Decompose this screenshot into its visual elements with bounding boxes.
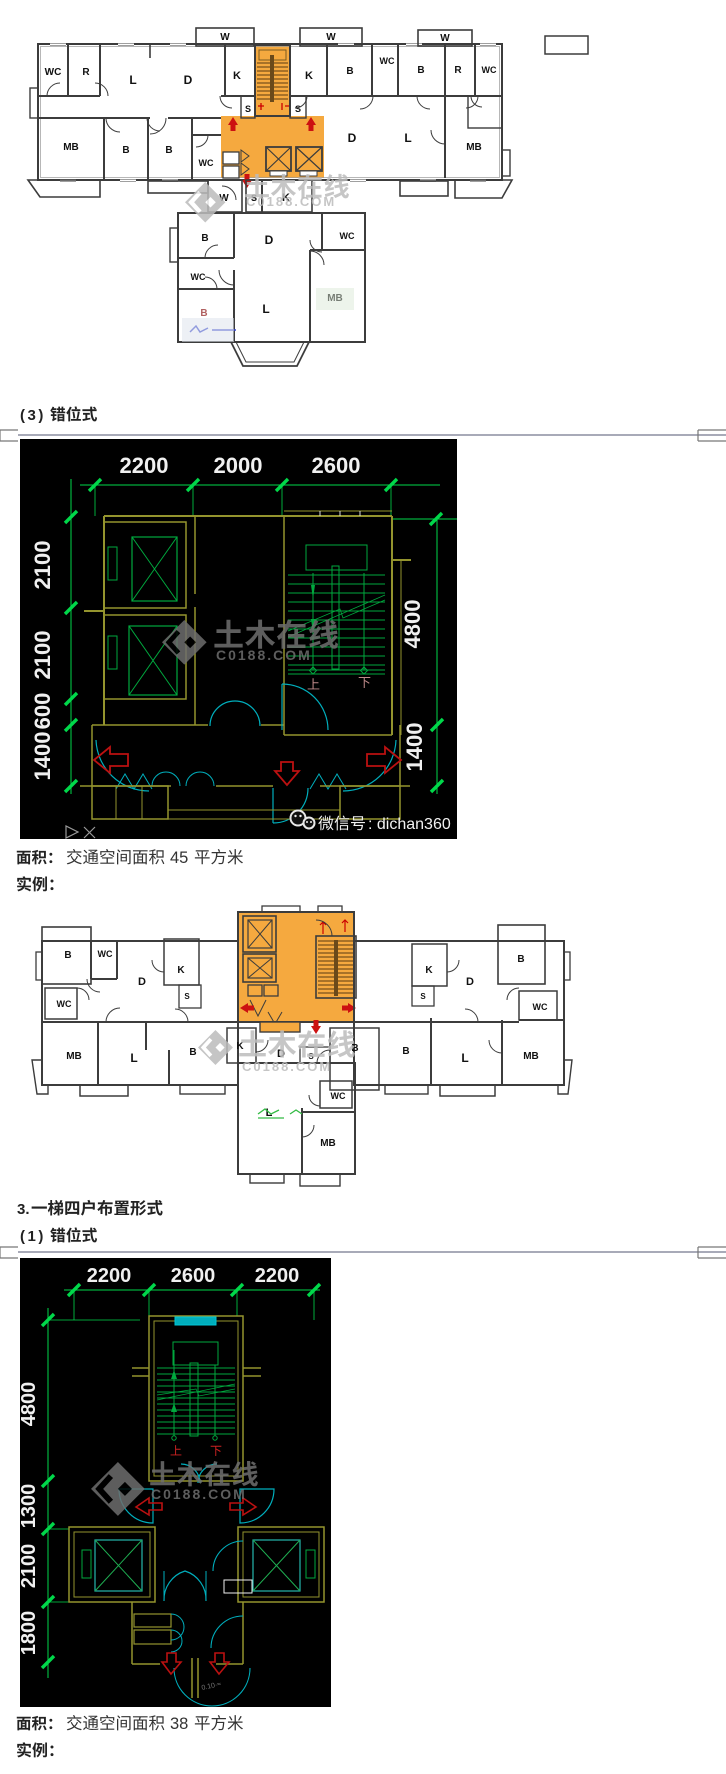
- svg-text:WC: WC: [45, 67, 62, 78]
- svg-text:B: B: [200, 308, 207, 319]
- svg-text:L: L: [129, 73, 136, 87]
- svg-text:2600: 2600: [171, 1265, 216, 1287]
- svg-text:WC: WC: [57, 999, 72, 1009]
- svg-text:2600: 2600: [312, 453, 361, 478]
- svg-text:W: W: [326, 32, 336, 43]
- svg-text:4800: 4800: [18, 1382, 40, 1427]
- svg-text:: dichan360: : dichan360: [368, 816, 451, 833]
- svg-text:WC: WC: [482, 65, 497, 75]
- svg-text:C0188.COM: C0188.COM: [216, 647, 312, 663]
- svg-text:WC: WC: [533, 1002, 548, 1012]
- svg-text:MB: MB: [66, 1051, 82, 1062]
- svg-text:B: B: [189, 1047, 196, 1058]
- svg-text:S: S: [245, 104, 251, 114]
- svg-text:L: L: [404, 131, 411, 145]
- svg-text:S: S: [295, 104, 301, 114]
- svg-text:B: B: [346, 66, 353, 77]
- svg-text:2100: 2100: [30, 541, 55, 590]
- svg-text:WC: WC: [331, 1091, 346, 1101]
- svg-text:WC: WC: [199, 158, 214, 168]
- svg-text:MB: MB: [320, 1138, 336, 1149]
- svg-text:2200: 2200: [255, 1265, 300, 1287]
- svg-text:(3): (3): [20, 407, 46, 424]
- svg-text:K: K: [233, 70, 241, 82]
- svg-text:L: L: [130, 1051, 137, 1065]
- svg-text:1800: 1800: [18, 1611, 40, 1656]
- svg-text:D: D: [348, 131, 357, 145]
- svg-text:600: 600: [30, 693, 55, 730]
- svg-text:R: R: [82, 67, 90, 78]
- svg-text:WC: WC: [191, 272, 206, 282]
- svg-text:2100: 2100: [30, 631, 55, 680]
- svg-text:2200: 2200: [120, 453, 169, 478]
- svg-text:B: B: [122, 145, 129, 156]
- svg-text:WC: WC: [380, 56, 395, 66]
- svg-text:C0188.COM: C0188.COM: [246, 194, 336, 209]
- svg-text:2000: 2000: [214, 453, 263, 478]
- svg-text:K: K: [177, 965, 185, 976]
- svg-text:2200: 2200: [87, 1265, 132, 1287]
- svg-text:D: D: [265, 233, 274, 247]
- svg-text:B: B: [517, 954, 524, 965]
- svg-text:B: B: [402, 1046, 409, 1057]
- svg-text:D: D: [138, 976, 146, 988]
- svg-text:MB: MB: [63, 142, 79, 153]
- svg-text:3.: 3.: [17, 1201, 30, 1218]
- svg-text:45: 45: [170, 849, 188, 867]
- svg-text:W: W: [220, 32, 230, 43]
- svg-text:4800: 4800: [400, 600, 425, 649]
- svg-text:L: L: [262, 302, 269, 316]
- svg-text:B: B: [201, 233, 208, 244]
- svg-text:K: K: [305, 70, 313, 82]
- svg-text:1400: 1400: [402, 723, 427, 772]
- svg-text:(1): (1): [20, 1228, 46, 1245]
- svg-text:C0188.COM: C0188.COM: [151, 1486, 247, 1502]
- svg-text:K: K: [425, 965, 433, 976]
- svg-text:WC: WC: [98, 949, 113, 959]
- svg-text:2100: 2100: [18, 1544, 40, 1589]
- svg-text:MB: MB: [466, 142, 482, 153]
- svg-text:B: B: [64, 950, 71, 961]
- svg-text:C0188.COM: C0188.COM: [242, 1059, 332, 1074]
- svg-text:W: W: [440, 33, 450, 44]
- svg-text:R: R: [454, 65, 462, 76]
- svg-text:B: B: [165, 145, 172, 156]
- svg-text:S: S: [420, 992, 426, 1001]
- svg-text:WC: WC: [340, 231, 355, 241]
- svg-text:L: L: [461, 1051, 468, 1065]
- svg-text:D: D: [184, 73, 193, 87]
- svg-text:MB: MB: [523, 1051, 539, 1062]
- svg-text:B: B: [417, 65, 424, 76]
- svg-text:1300: 1300: [18, 1484, 40, 1529]
- svg-text:S: S: [184, 992, 190, 1001]
- svg-text:D: D: [466, 976, 474, 988]
- svg-text:38: 38: [170, 1715, 188, 1733]
- svg-text:1400: 1400: [30, 732, 55, 781]
